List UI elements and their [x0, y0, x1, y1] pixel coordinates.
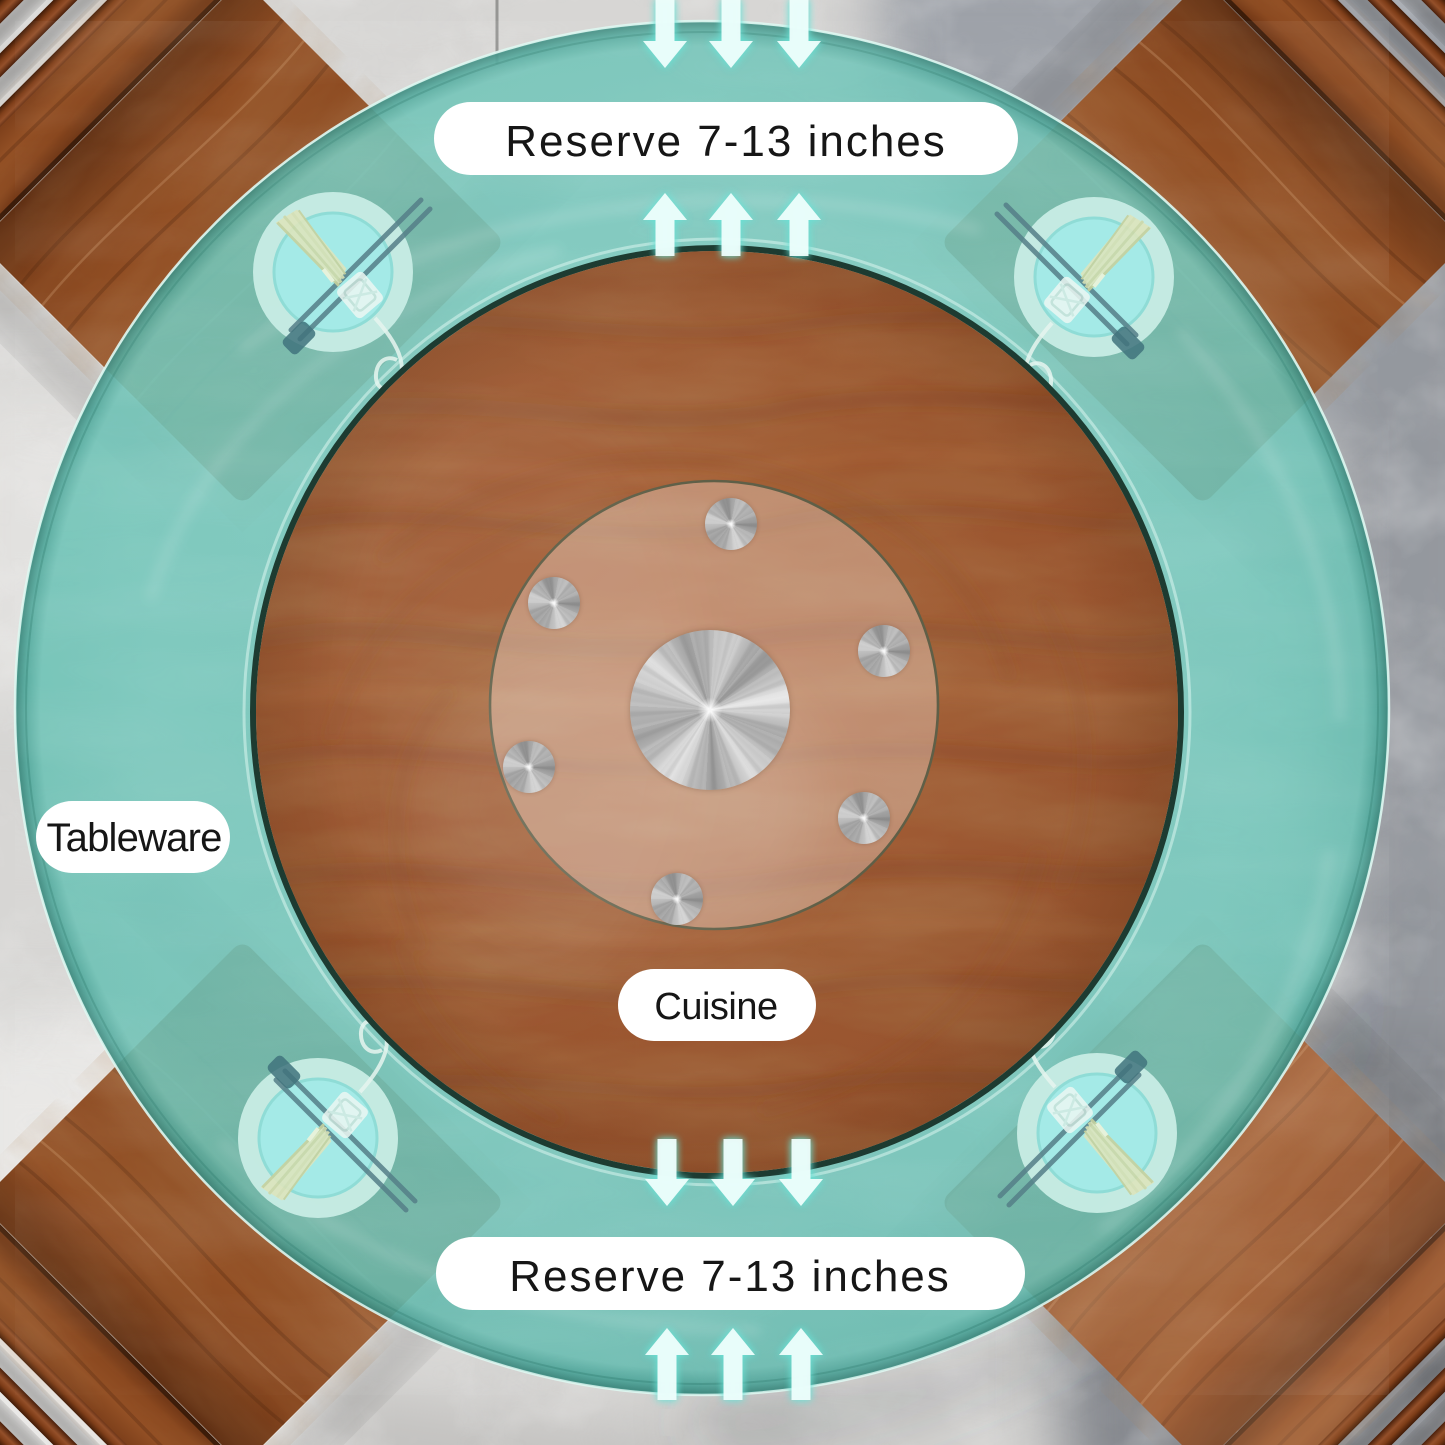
svg-text:Tableware: Tableware [46, 816, 221, 860]
svg-text:Reserve 7-13 inches: Reserve 7-13 inches [509, 1252, 951, 1301]
svg-text:Reserve 7-13 inches: Reserve 7-13 inches [505, 117, 947, 166]
svg-text:Cuisine: Cuisine [654, 986, 777, 1028]
